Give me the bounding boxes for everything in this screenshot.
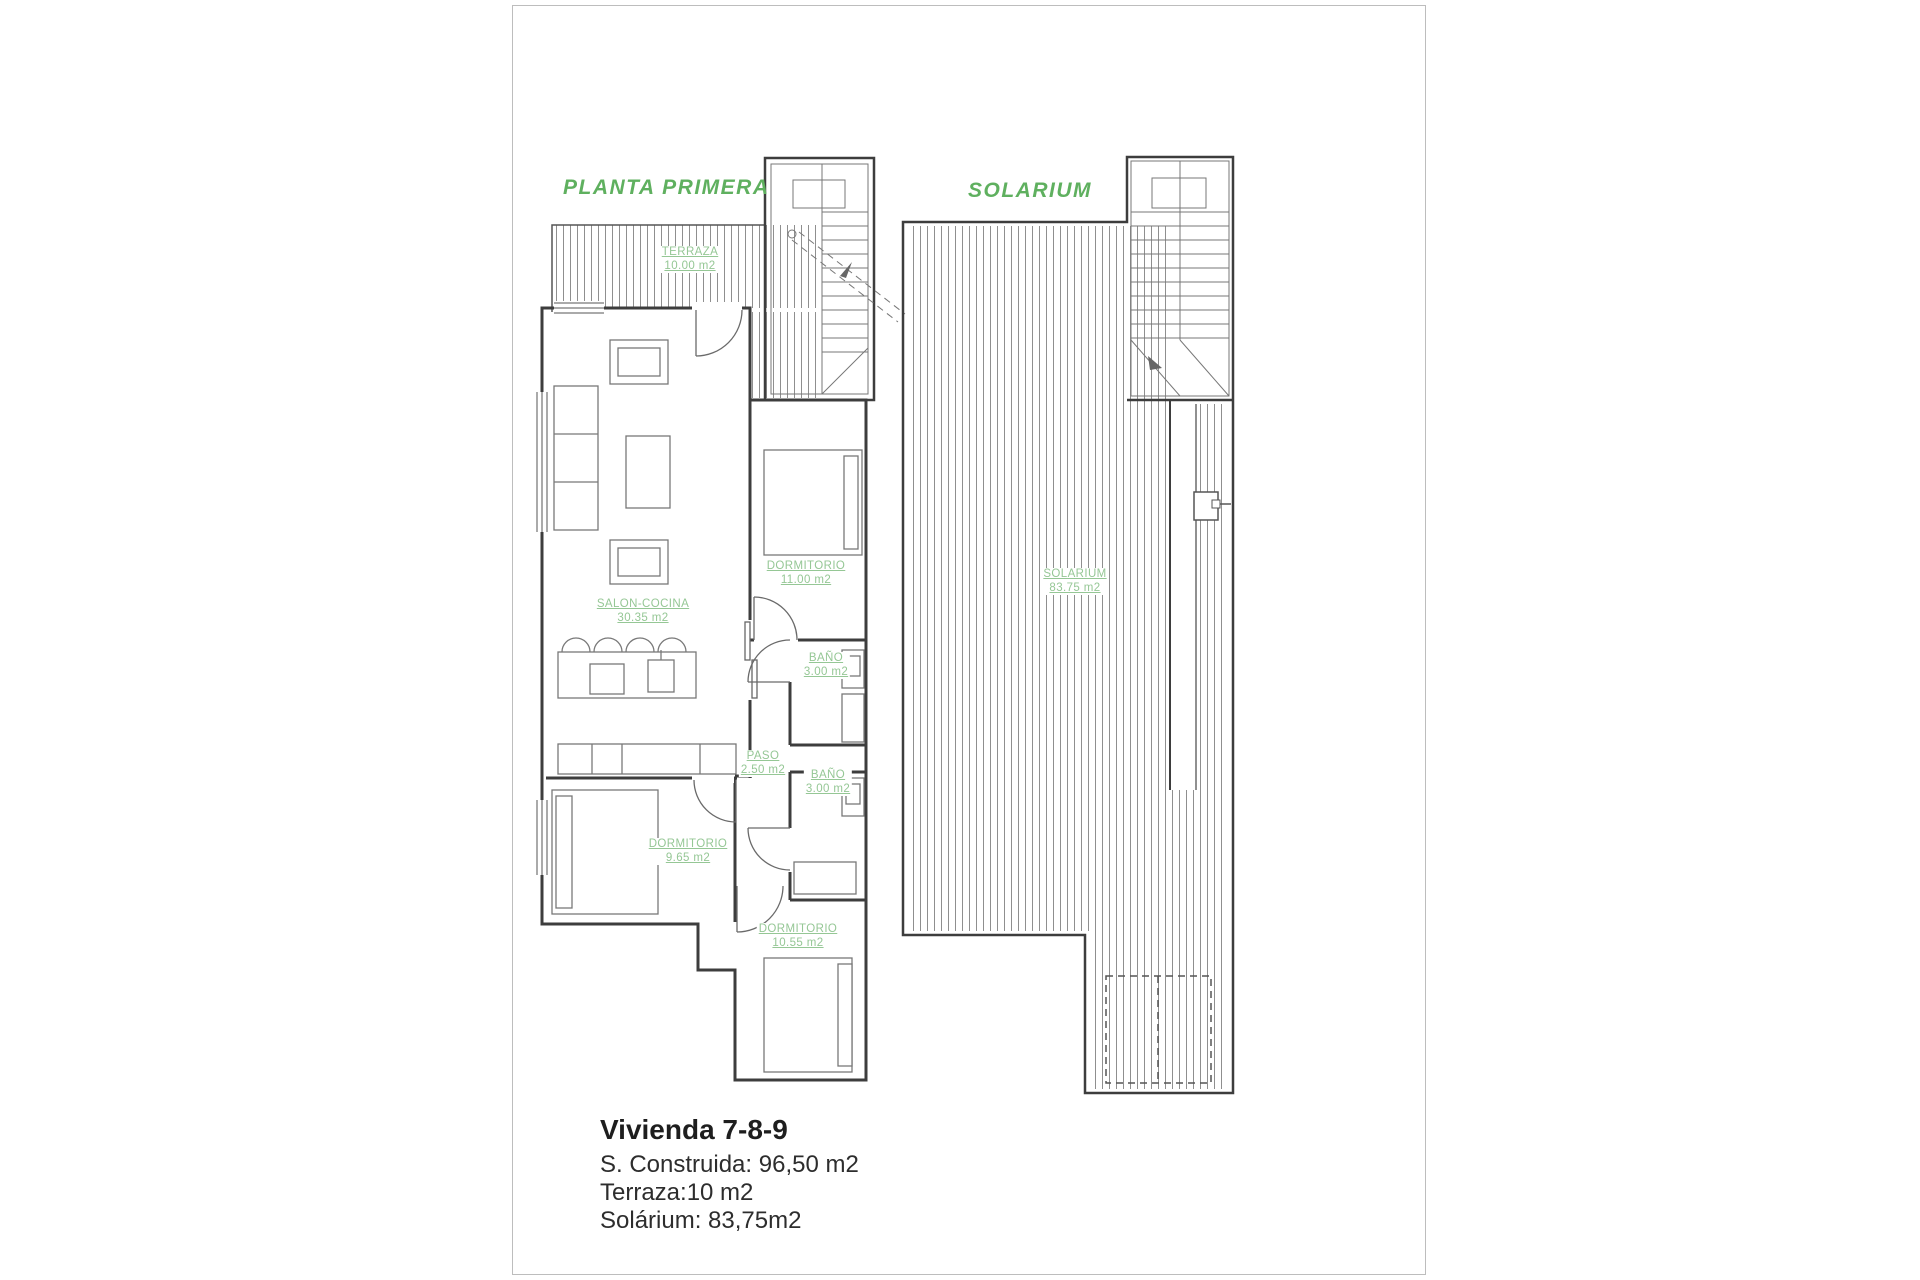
summary-title: Vivienda 7-8-9 <box>600 1114 859 1146</box>
bar-stool <box>626 638 654 652</box>
kitchen-counter <box>558 744 736 774</box>
solarium-hatch <box>907 226 1224 1089</box>
floor-plan-drawing <box>0 0 1920 1280</box>
kitchen-island <box>558 652 696 698</box>
summary-block: Vivienda 7-8-9 S. Construida: 96,50 m2 T… <box>600 1114 859 1235</box>
summary-solarium-area: Solárium: 83,75m2 <box>600 1207 859 1235</box>
cooktop <box>590 664 624 694</box>
room-label-paso: PASO 2.50 m2 <box>739 750 787 777</box>
bar-stool <box>562 638 590 652</box>
furniture <box>552 340 864 1072</box>
room-label-dormitorio-11: DORMITORIO 11.00 m2 <box>765 560 848 587</box>
solarium-title: SOLARIUM <box>968 179 1092 203</box>
bar-stool <box>658 638 686 652</box>
room-label-terraza: TERRAZA 10.00 m2 <box>660 246 720 273</box>
room-label-bano-2: BAÑO 3.00 m2 <box>804 769 852 796</box>
coffee-table <box>626 436 670 508</box>
bar-stool <box>594 638 622 652</box>
summary-built-area: S. Construida: 96,50 m2 <box>600 1151 859 1179</box>
sofa <box>554 386 598 530</box>
room-label-bano-1: BAÑO 3.00 m2 <box>802 652 850 679</box>
roof-hatch <box>1194 492 1231 520</box>
shower <box>842 694 864 742</box>
sink <box>648 660 674 692</box>
summary-terraza-area: Terraza:10 m2 <box>600 1179 859 1207</box>
room-label-dormitorio-1055: DORMITORIO 10.55 m2 <box>757 923 840 950</box>
room-label-salon-cocina: SALON-COCINA 30.35 m2 <box>595 598 691 625</box>
floor-plan-sheet: PLANTA PRIMERA SOLARIUM TERRAZA 10.00 m2… <box>0 0 1920 1280</box>
room-label-dormitorio-965: DORMITORIO 9.65 m2 <box>647 838 730 865</box>
planta-primera-title: PLANTA PRIMERA <box>563 176 770 200</box>
shower-tray <box>794 862 856 894</box>
room-label-solarium: SOLARIUM 83.75 m2 <box>1041 568 1108 595</box>
